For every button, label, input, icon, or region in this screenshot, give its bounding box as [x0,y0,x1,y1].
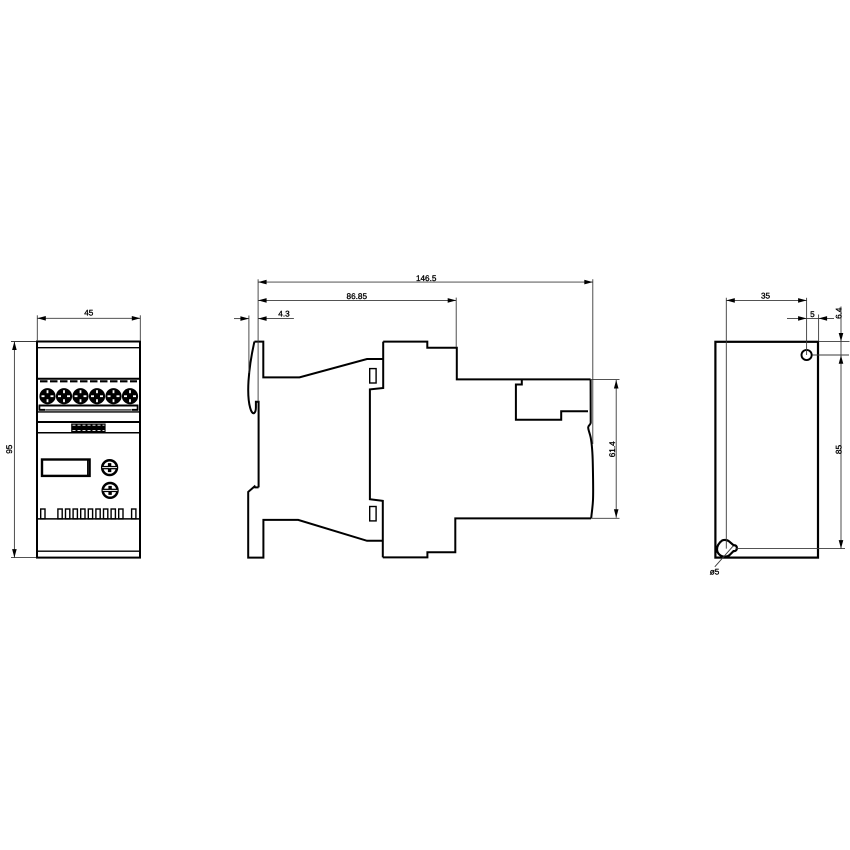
svg-text:86.85: 86.85 [347,292,368,301]
svg-text:146.5: 146.5 [416,274,437,283]
svg-text:61.4: 61.4 [608,441,617,457]
svg-text:35: 35 [761,291,771,300]
svg-text:85: 85 [834,445,843,455]
svg-text:95: 95 [5,444,14,454]
svg-text:5: 5 [810,310,815,319]
svg-text:4.3: 4.3 [278,310,290,319]
svg-text:ø5: ø5 [710,568,720,577]
svg-text:45: 45 [84,309,94,318]
svg-text:6.4: 6.4 [834,307,843,319]
